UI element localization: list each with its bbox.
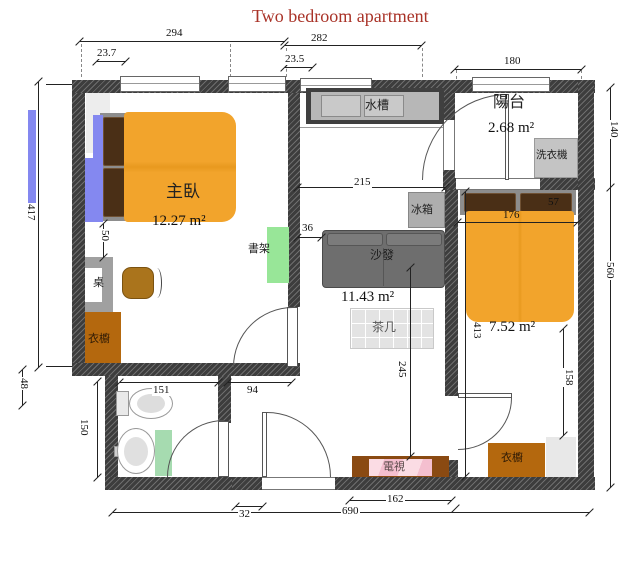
- washing-machine-label: 洗衣機: [536, 150, 568, 161]
- dim-294: 294: [165, 27, 184, 39]
- master-bed-pillow-1: [103, 117, 125, 166]
- dim-162: 162: [386, 493, 405, 505]
- dim-245: 245: [396, 360, 408, 379]
- ext-line-6: [581, 70, 582, 79]
- fridge-label: 冰箱: [411, 204, 433, 215]
- ext-line-5: [456, 70, 457, 79]
- dim-560: 560: [604, 261, 616, 280]
- bathroom-sink-basin: [124, 437, 148, 466]
- ext-line-1: [81, 44, 82, 77]
- bathroom-door-arc: [167, 420, 224, 477]
- dim-line-245: [410, 268, 411, 457]
- dim-158: 158: [563, 368, 575, 387]
- page-title: Two bedroom apartment: [252, 6, 429, 27]
- bookshelf: [267, 227, 289, 283]
- dim-line-176: [458, 222, 578, 223]
- dim-36: 36: [301, 222, 314, 234]
- dim-line-36: [298, 237, 322, 238]
- master-window-panel-small: [93, 115, 103, 158]
- bedroom2-bed-duvet: [466, 211, 574, 322]
- master-bed-pillow-2: [103, 168, 125, 217]
- sink-label: 水槽: [365, 99, 389, 111]
- floor-plan: Two bedroom apartment 主臥 12.27 m² 書架 桌: [0, 0, 640, 566]
- dim-23-7: 23.7: [96, 47, 117, 59]
- dim-line-151: [120, 382, 219, 383]
- bedroom2-pillow-2: [520, 193, 572, 212]
- dim-151: 151: [152, 384, 171, 396]
- ext-line-2: [230, 44, 231, 77]
- dim-23-5: 23.5: [284, 53, 305, 65]
- dim-line-282: [285, 45, 422, 46]
- master-wardrobe-label: 衣櫥: [88, 333, 110, 344]
- dim-line-215: [298, 187, 446, 188]
- dim-140: 140: [608, 120, 620, 139]
- sofa-cushion-2: [386, 233, 442, 246]
- dim-line-294: [80, 41, 285, 42]
- bedroom2-wardrobe-label: 衣櫥: [501, 452, 523, 463]
- dim-57: 57: [547, 196, 560, 208]
- ext-line-417-top: [46, 84, 72, 85]
- opening-entrance: [262, 477, 335, 490]
- window-master-2: [228, 76, 286, 92]
- sofa-label: 沙發: [370, 249, 394, 261]
- master-door-arc: [233, 307, 293, 367]
- dim-32: 32: [238, 508, 251, 520]
- bookshelf-label: 書架: [248, 243, 270, 254]
- ext-line-4: [422, 48, 423, 77]
- balcony-room-label: 陽台: [493, 94, 525, 110]
- dim-180: 180: [503, 55, 522, 67]
- chair-armrest-arc: [152, 268, 162, 298]
- balcony-area-label: 2.68 m²: [488, 121, 534, 136]
- sofa-cushion-1: [327, 233, 383, 246]
- dim-line-150: [97, 382, 98, 478]
- bedroom2-area-label: 7.52 m²: [489, 320, 535, 335]
- master-area-label: 12.27 m²: [152, 214, 206, 229]
- opening-bedroom2-door: [445, 396, 458, 460]
- master-bed-duvet: [124, 112, 236, 222]
- living-area-label: 11.43 m²: [341, 290, 394, 305]
- master-window-panel-large: [85, 158, 103, 222]
- dim-line-417: [38, 82, 39, 368]
- dim-line-right-140-560: [610, 88, 611, 488]
- toilet-tank: [116, 391, 129, 416]
- dim-150: 150: [78, 418, 90, 437]
- wall-living-bedroom2: [445, 190, 458, 396]
- wall-left: [72, 93, 85, 376]
- dim-line-23-7: [97, 61, 126, 62]
- ext-line-417-bottom: [46, 366, 72, 367]
- entrance-door-arc: [267, 412, 331, 477]
- counter-edge-line: [300, 127, 445, 128]
- chair: [122, 267, 154, 299]
- wall-right: [578, 80, 594, 490]
- dim-417: 417: [25, 203, 37, 222]
- wall-master-living: [288, 93, 300, 307]
- dim-48: 48: [18, 377, 30, 390]
- dim-line-32: [236, 506, 263, 507]
- master-room-label: 主臥: [166, 184, 200, 201]
- coffee-table-label: 茶几: [372, 321, 396, 333]
- window-balcony: [472, 77, 550, 92]
- dim-413: 413: [471, 321, 483, 340]
- dim-215: 215: [353, 176, 372, 188]
- wall-bottom-bathroom: [105, 477, 232, 490]
- dim-50: 50: [99, 229, 111, 242]
- dim-176: 176: [502, 209, 521, 221]
- dim-line-413: [465, 192, 466, 477]
- toilet-bowl-inner: [137, 394, 165, 413]
- dim-line-94: [228, 382, 292, 383]
- bedroom2-gray-cabinet: [546, 437, 576, 477]
- sink-basin-1: [321, 95, 361, 117]
- dim-line-180: [455, 69, 582, 70]
- dim-94: 94: [246, 384, 259, 396]
- tv-label: 電視: [383, 461, 405, 472]
- dim-690: 690: [341, 505, 360, 517]
- dim-line-23-5: [285, 67, 313, 68]
- desk-label: 桌: [93, 277, 104, 288]
- dim-282: 282: [310, 32, 329, 44]
- exterior-window-bar: [28, 110, 36, 207]
- window-master-1: [120, 76, 200, 92]
